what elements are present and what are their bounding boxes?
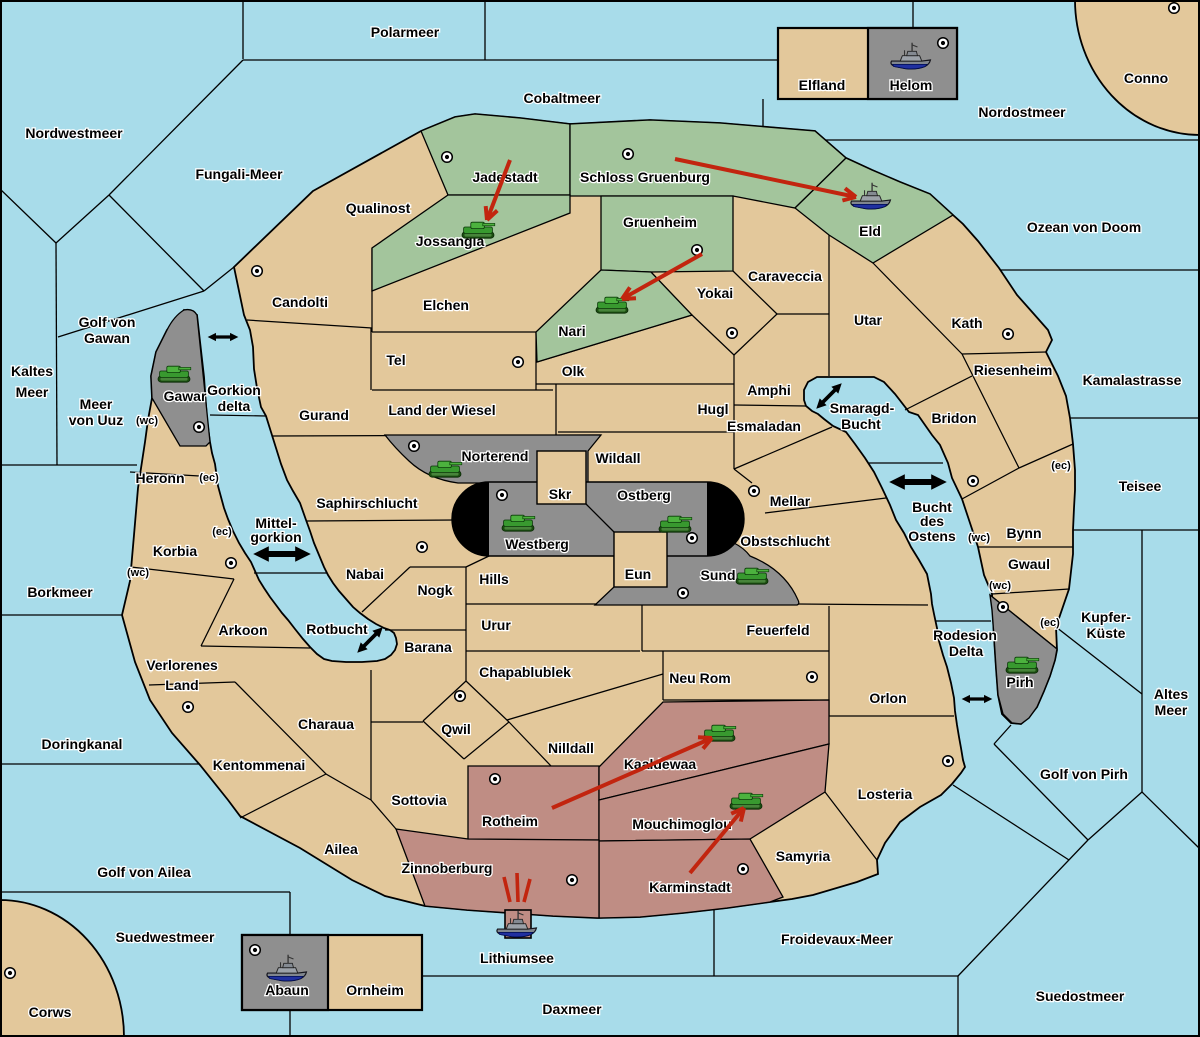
svg-text:Olk: Olk xyxy=(562,363,585,379)
svg-text:Karminstadt: Karminstadt xyxy=(649,879,731,895)
svg-text:Korbia: Korbia xyxy=(153,543,198,559)
svg-text:von Uuz: von Uuz xyxy=(69,412,123,428)
svg-text:(ec): (ec) xyxy=(1040,617,1060,629)
svg-text:Hills: Hills xyxy=(479,571,509,587)
svg-text:Land der Wiesel: Land der Wiesel xyxy=(388,402,495,418)
svg-text:Ornheim: Ornheim xyxy=(346,982,404,998)
svg-text:(wc): (wc) xyxy=(127,567,149,579)
svg-text:des: des xyxy=(920,513,944,529)
svg-text:Lithiumsee: Lithiumsee xyxy=(480,950,554,966)
svg-text:Mellar: Mellar xyxy=(770,493,811,509)
svg-text:Conno: Conno xyxy=(1124,70,1168,86)
svg-text:Golf von Ailea: Golf von Ailea xyxy=(97,864,191,880)
svg-text:Nogk: Nogk xyxy=(418,582,453,598)
svg-text:Neu Rom: Neu Rom xyxy=(669,670,730,686)
svg-text:Ailea: Ailea xyxy=(324,841,358,857)
svg-text:Gurand: Gurand xyxy=(299,407,349,423)
svg-text:(wc): (wc) xyxy=(989,580,1011,592)
svg-text:Schloss Gruenburg: Schloss Gruenburg xyxy=(580,169,710,185)
svg-text:Riesenheim: Riesenheim xyxy=(974,362,1053,378)
svg-text:Kupfer-: Kupfer- xyxy=(1081,609,1131,625)
svg-text:Ozean von Doom: Ozean von Doom xyxy=(1027,219,1141,235)
svg-text:Smaragd-: Smaragd- xyxy=(830,400,895,416)
svg-text:Nordostmeer: Nordostmeer xyxy=(978,104,1066,120)
svg-text:Sottovia: Sottovia xyxy=(391,792,446,808)
svg-text:Daxmeer: Daxmeer xyxy=(542,1001,602,1017)
svg-text:(wc): (wc) xyxy=(968,532,990,544)
svg-text:Meer: Meer xyxy=(1155,702,1188,718)
svg-text:Delta: Delta xyxy=(949,643,983,659)
svg-text:Losteria: Losteria xyxy=(858,786,913,802)
svg-text:Chapablublek: Chapablublek xyxy=(479,664,571,680)
svg-text:Eld: Eld xyxy=(859,223,881,239)
svg-text:Ostberg: Ostberg xyxy=(617,487,671,503)
svg-text:Eun: Eun xyxy=(625,566,651,582)
svg-text:Caraveccia: Caraveccia xyxy=(748,268,822,284)
svg-text:Gruenheim: Gruenheim xyxy=(623,214,697,230)
svg-text:Nordwestmeer: Nordwestmeer xyxy=(25,125,123,141)
svg-text:Helom: Helom xyxy=(890,77,933,93)
svg-text:Qwil: Qwil xyxy=(441,721,471,737)
svg-text:Froidevaux-Meer: Froidevaux-Meer xyxy=(781,931,894,947)
svg-text:Teisee: Teisee xyxy=(1119,478,1162,494)
svg-text:Elchen: Elchen xyxy=(423,297,469,313)
svg-text:Pirh: Pirh xyxy=(1006,674,1033,690)
svg-text:Nilldall: Nilldall xyxy=(548,740,594,756)
svg-text:Altes: Altes xyxy=(1154,686,1188,702)
svg-text:Rotheim: Rotheim xyxy=(482,813,538,829)
svg-text:Charaua: Charaua xyxy=(298,716,354,732)
svg-text:Kentommenai: Kentommenai xyxy=(213,757,306,773)
svg-text:Nari: Nari xyxy=(558,323,585,339)
svg-text:Wildall: Wildall xyxy=(596,450,641,466)
svg-text:Verlorenes: Verlorenes xyxy=(146,657,218,673)
svg-text:Abaun: Abaun xyxy=(265,982,309,998)
svg-text:Obstschlucht: Obstschlucht xyxy=(740,533,830,549)
svg-text:Borkmeer: Borkmeer xyxy=(27,584,93,600)
svg-text:Yokai: Yokai xyxy=(697,285,733,301)
svg-text:Saphirschlucht: Saphirschlucht xyxy=(316,495,417,511)
svg-text:Meer: Meer xyxy=(80,396,113,412)
svg-text:Land: Land xyxy=(165,677,198,693)
svg-text:Utar: Utar xyxy=(854,312,883,328)
svg-text:Arkoon: Arkoon xyxy=(219,622,268,638)
svg-text:Amphi: Amphi xyxy=(747,382,791,398)
svg-text:Urur: Urur xyxy=(481,617,511,633)
svg-text:Mouchimoglou: Mouchimoglou xyxy=(632,816,732,832)
svg-text:Esmaladan: Esmaladan xyxy=(727,418,801,434)
svg-text:Gawar: Gawar xyxy=(164,388,207,404)
svg-text:Barana: Barana xyxy=(404,639,452,655)
svg-text:Heronn: Heronn xyxy=(136,470,185,486)
svg-text:Meer: Meer xyxy=(16,384,49,400)
svg-text:(wc): (wc) xyxy=(136,415,158,427)
svg-text:Kath: Kath xyxy=(951,315,982,331)
svg-text:Kaltes: Kaltes xyxy=(11,363,53,379)
svg-text:Cobaltmeer: Cobaltmeer xyxy=(523,90,601,106)
svg-text:Rotbucht: Rotbucht xyxy=(306,621,368,637)
svg-text:Sund: Sund xyxy=(701,567,736,583)
svg-text:Bridon: Bridon xyxy=(931,410,976,426)
svg-text:Corws: Corws xyxy=(29,1004,72,1020)
svg-text:Ostens: Ostens xyxy=(908,528,956,544)
svg-text:(ec): (ec) xyxy=(1051,460,1071,472)
svg-text:Golf von: Golf von xyxy=(79,314,136,330)
svg-text:Suedostmeer: Suedostmeer xyxy=(1036,988,1125,1004)
svg-text:(ec): (ec) xyxy=(199,472,219,484)
svg-text:gorkion: gorkion xyxy=(250,529,301,545)
svg-text:Bynn: Bynn xyxy=(1007,525,1042,541)
svg-text:Hugl: Hugl xyxy=(697,401,728,417)
svg-text:Doringkanal: Doringkanal xyxy=(42,736,123,752)
svg-text:(ec): (ec) xyxy=(212,526,232,538)
svg-text:Suedwestmeer: Suedwestmeer xyxy=(116,929,215,945)
svg-text:Skr: Skr xyxy=(549,486,572,502)
svg-text:Elfland: Elfland xyxy=(799,77,846,93)
svg-text:Kaaldewaa: Kaaldewaa xyxy=(624,756,697,772)
svg-text:Rodesion: Rodesion xyxy=(933,627,997,643)
svg-text:Fungali-Meer: Fungali-Meer xyxy=(195,166,283,182)
svg-text:Orlon: Orlon xyxy=(869,690,906,706)
svg-text:Tel: Tel xyxy=(386,352,405,368)
svg-text:Golf von Pirh: Golf von Pirh xyxy=(1040,766,1128,782)
svg-text:Gawan: Gawan xyxy=(84,330,130,346)
svg-text:Gwaul: Gwaul xyxy=(1008,556,1050,572)
svg-text:Qualinost: Qualinost xyxy=(346,200,411,216)
svg-text:Kamalastrasse: Kamalastrasse xyxy=(1083,372,1182,388)
svg-text:Samyria: Samyria xyxy=(776,848,831,864)
svg-text:Westberg: Westberg xyxy=(505,536,569,552)
svg-text:Candolti: Candolti xyxy=(272,294,328,310)
svg-text:Gorkion: Gorkion xyxy=(207,382,261,398)
svg-text:Norterend: Norterend xyxy=(462,448,529,464)
svg-text:Nabai: Nabai xyxy=(346,566,384,582)
svg-text:Bucht: Bucht xyxy=(841,416,881,432)
svg-text:Feuerfeld: Feuerfeld xyxy=(746,622,809,638)
svg-text:Zinnoberburg: Zinnoberburg xyxy=(402,860,493,876)
svg-text:Polarmeer: Polarmeer xyxy=(371,24,440,40)
svg-text:delta: delta xyxy=(218,398,251,414)
svg-text:Küste: Küste xyxy=(1087,625,1126,641)
